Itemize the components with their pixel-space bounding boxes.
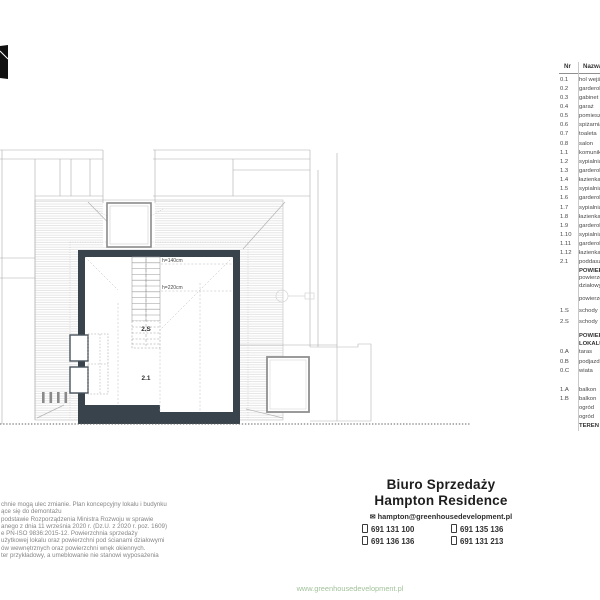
room-name: łazienka xyxy=(579,177,600,183)
table-row: powierzchnia xyxy=(560,295,600,303)
room-number: 1.6 xyxy=(560,195,579,201)
room-name: komunikacja xyxy=(579,150,600,156)
room-number: 2.1 xyxy=(560,259,579,265)
room-name: schody xyxy=(579,319,600,325)
mobile-phone-icon xyxy=(451,524,457,533)
website-link[interactable]: www.greenhousedevelopment.pl xyxy=(270,584,430,593)
room-name: garaż xyxy=(579,104,600,110)
room-name: podjazd xyxy=(579,359,600,365)
room-name: poddasze xyxy=(579,259,600,265)
table-row: powierzchnia xyxy=(560,275,600,283)
room-number: 0.3 xyxy=(560,95,579,101)
room-name: hol wejściowy xyxy=(579,77,600,83)
table-row: 1.10sypialnia xyxy=(560,230,600,239)
table-row: 0.5pomieszczenie xyxy=(560,112,600,121)
table-row: działowymi xyxy=(560,282,600,290)
room-name: działowymi xyxy=(579,283,600,289)
sales-office-contact: Biuro Sprzedaży Hampton Residence ✉hampt… xyxy=(352,477,530,547)
disclaimer-line: anego z dnia 11 września 2020 r. (Dz.U. … xyxy=(1,523,321,530)
room-number: 1.9 xyxy=(560,223,579,229)
room-number: 1.4 xyxy=(560,177,579,183)
room-name: łazienka xyxy=(579,214,600,220)
room-number: 1.12 xyxy=(560,250,579,256)
room-label-2s: 2.S xyxy=(141,326,151,333)
room-name: toaleta xyxy=(579,131,600,137)
room-number: 0.C xyxy=(560,368,579,374)
table-header-rule xyxy=(559,73,600,74)
table-row: 1.4łazienka xyxy=(560,176,600,185)
room-number: 1.11 xyxy=(560,241,579,247)
table-row: 1.7sypialnia xyxy=(560,203,600,212)
mobile-phone-icon xyxy=(362,524,368,533)
room-name: TEREN xyxy=(579,423,600,429)
room-table: 0.1hol wejściowy0.2garderoba0.3gabinet0.… xyxy=(560,75,600,431)
room-name: POWIERZCHNIE xyxy=(579,333,600,339)
room-number: 1.A xyxy=(560,387,579,393)
room-number: 1.3 xyxy=(560,168,579,174)
room-number: 1.S xyxy=(560,308,579,314)
table-header-nr: Nr xyxy=(564,63,571,70)
room-name: salon xyxy=(579,141,600,147)
room-name: sypialnia xyxy=(579,232,600,238)
room-number: 0.6 xyxy=(560,122,579,128)
table-row: 1.8łazienka xyxy=(560,212,600,221)
envelope-icon: ✉ xyxy=(370,514,376,521)
room-number: 1.5 xyxy=(560,186,579,192)
table-row: 1.2sypialnia xyxy=(560,157,600,166)
table-row: 1.12łazienka xyxy=(560,249,600,258)
room-name: łazienka xyxy=(579,250,600,256)
room-number: 0.4 xyxy=(560,104,579,110)
development-name: Hampton Residence xyxy=(352,493,530,509)
table-row: 0.7toaleta xyxy=(560,130,600,139)
chimney xyxy=(107,203,151,247)
disclaimer-text: chnie mogą ulec zmianie. Plan koncepcyjn… xyxy=(1,501,321,559)
room-name: powierzchnia xyxy=(579,275,600,281)
room-number: 0.7 xyxy=(560,131,579,137)
table-row: 0.4garaż xyxy=(560,102,600,111)
disclaimer-line: ów wewnętrznych oraz powierzchni wnęk ok… xyxy=(1,545,321,552)
table-row: POWIERZCHNIA xyxy=(560,267,600,275)
table-row: 0.1hol wejściowy xyxy=(560,75,600,84)
table-row: LOKALU xyxy=(560,340,600,348)
room-label-21: 2.1 xyxy=(142,375,151,382)
disclaimer-line: chnie mogą ulec zmianie. Plan koncepcyjn… xyxy=(1,501,321,508)
room-name: LOKALU xyxy=(579,341,600,347)
phone-list: 691 131 100691 135 136691 136 136691 131… xyxy=(352,524,530,547)
room-name: balkon xyxy=(579,387,600,393)
room-name: garderoba xyxy=(579,223,600,229)
room-number: 1.10 xyxy=(560,232,579,238)
room-name: sypialnia xyxy=(579,186,600,192)
table-row: 1.Abalkon xyxy=(560,385,600,394)
table-row: 1.5sypialnia xyxy=(560,185,600,194)
table-row: 0.8salon xyxy=(560,139,600,148)
phone-number[interactable]: 691 131 100 xyxy=(352,524,441,536)
phone-number[interactable]: 691 136 136 xyxy=(352,536,441,548)
room-name: ogród xyxy=(579,405,600,411)
room-name: taras xyxy=(579,349,600,355)
room-name: sypialnia xyxy=(579,159,600,165)
room-number: 1.8 xyxy=(560,214,579,220)
room-name: garderoba xyxy=(579,86,600,92)
room-name: gabinet xyxy=(579,95,600,101)
room-name: pomieszczenie xyxy=(579,113,600,119)
room-name: balkon xyxy=(579,396,600,402)
room-name: powierzchnia xyxy=(579,296,600,302)
room-number: 1.1 xyxy=(560,150,579,156)
room-name: schody xyxy=(579,308,600,314)
table-row: 0.6spiżarnia xyxy=(560,121,600,130)
room-name: sypialnia xyxy=(579,205,600,211)
plan-page: { "brand": { "url": "www.greenhousedevel… xyxy=(0,0,600,600)
table-row: 2.Sschody xyxy=(560,317,600,326)
table-row: 0.Cwiata xyxy=(560,366,600,375)
phone-number[interactable]: 691 135 136 xyxy=(441,524,530,536)
sales-office-title: Biuro Sprzedaży xyxy=(352,477,530,493)
table-row: 1.1komunikacja xyxy=(560,148,600,157)
room-number: 1.7 xyxy=(560,205,579,211)
table-row: 0.Bpodjazd xyxy=(560,357,600,366)
room-number: 0.1 xyxy=(560,77,579,83)
room-name: spiżarnia xyxy=(579,122,600,128)
table-row: 1.3garderoba xyxy=(560,166,600,175)
room-number: 0.A xyxy=(560,349,579,355)
table-row: 1.11garderoba xyxy=(560,240,600,249)
table-row: 1.Bbalkon xyxy=(560,394,600,403)
phone-number[interactable]: 691 131 213 xyxy=(441,536,530,548)
table-row: 0.3gabinet xyxy=(560,93,600,102)
table-row: 1.6garderoba xyxy=(560,194,600,203)
room-number: 0.2 xyxy=(560,86,579,92)
disclaimer-line: ące się do demontażu xyxy=(1,508,321,515)
mobile-phone-icon xyxy=(362,536,368,545)
disclaimer-line: e PN-ISO 9836:2015-12. Powierzchnia sprz… xyxy=(1,530,321,537)
room-number: 1.2 xyxy=(560,159,579,165)
room-name: garderoba xyxy=(579,195,600,201)
brand-logo-fragment xyxy=(0,45,10,79)
room-number: 0.8 xyxy=(560,141,579,147)
mobile-phone-icon xyxy=(451,536,457,545)
table-row: 2.1poddasze xyxy=(560,258,600,267)
table-row: ogród xyxy=(560,413,600,422)
table-row: ogród xyxy=(560,404,600,413)
disclaimer-line: użytkowej lokalu oraz powierzchni pod śc… xyxy=(1,537,321,544)
table-row: 1.Sschody xyxy=(560,306,600,315)
table-row: POWIERZCHNIE xyxy=(560,333,600,341)
room-name: POWIERZCHNIA xyxy=(579,268,600,274)
room-number: 2.S xyxy=(560,319,579,325)
contact-email[interactable]: ✉hampton@greenhousedevelopment.pl xyxy=(352,512,530,521)
room-name: garderoba xyxy=(579,241,600,247)
table-header-name: Nazwa xyxy=(583,63,600,70)
disclaimer-line: ter przykładowy, a umeblowanie nie stano… xyxy=(1,552,321,559)
table-row: 1.9garderoba xyxy=(560,221,600,230)
email-address[interactable]: hampton@greenhousedevelopment.pl xyxy=(378,512,513,521)
room-number: 1.B xyxy=(560,396,579,402)
room-number: 0.B xyxy=(560,359,579,365)
room-number: 0.5 xyxy=(560,113,579,119)
disclaimer-line: podstawie Rozporządzenia Ministra Rozwoj… xyxy=(1,516,321,523)
table-row: TEREN xyxy=(560,422,600,431)
attic-floor-plan: h=140cm h=220cm 2.S 2.1 xyxy=(0,143,480,435)
room-name: ogród xyxy=(579,414,600,420)
staircase xyxy=(132,257,160,348)
height-label-220: h=220cm xyxy=(162,285,183,291)
table-row: 0.Ataras xyxy=(560,348,600,357)
room-name: garderoba xyxy=(579,168,600,174)
table-row: 0.2garderoba xyxy=(560,84,600,93)
room-name: wiata xyxy=(579,368,600,374)
height-label-140: h=140cm xyxy=(162,258,183,264)
